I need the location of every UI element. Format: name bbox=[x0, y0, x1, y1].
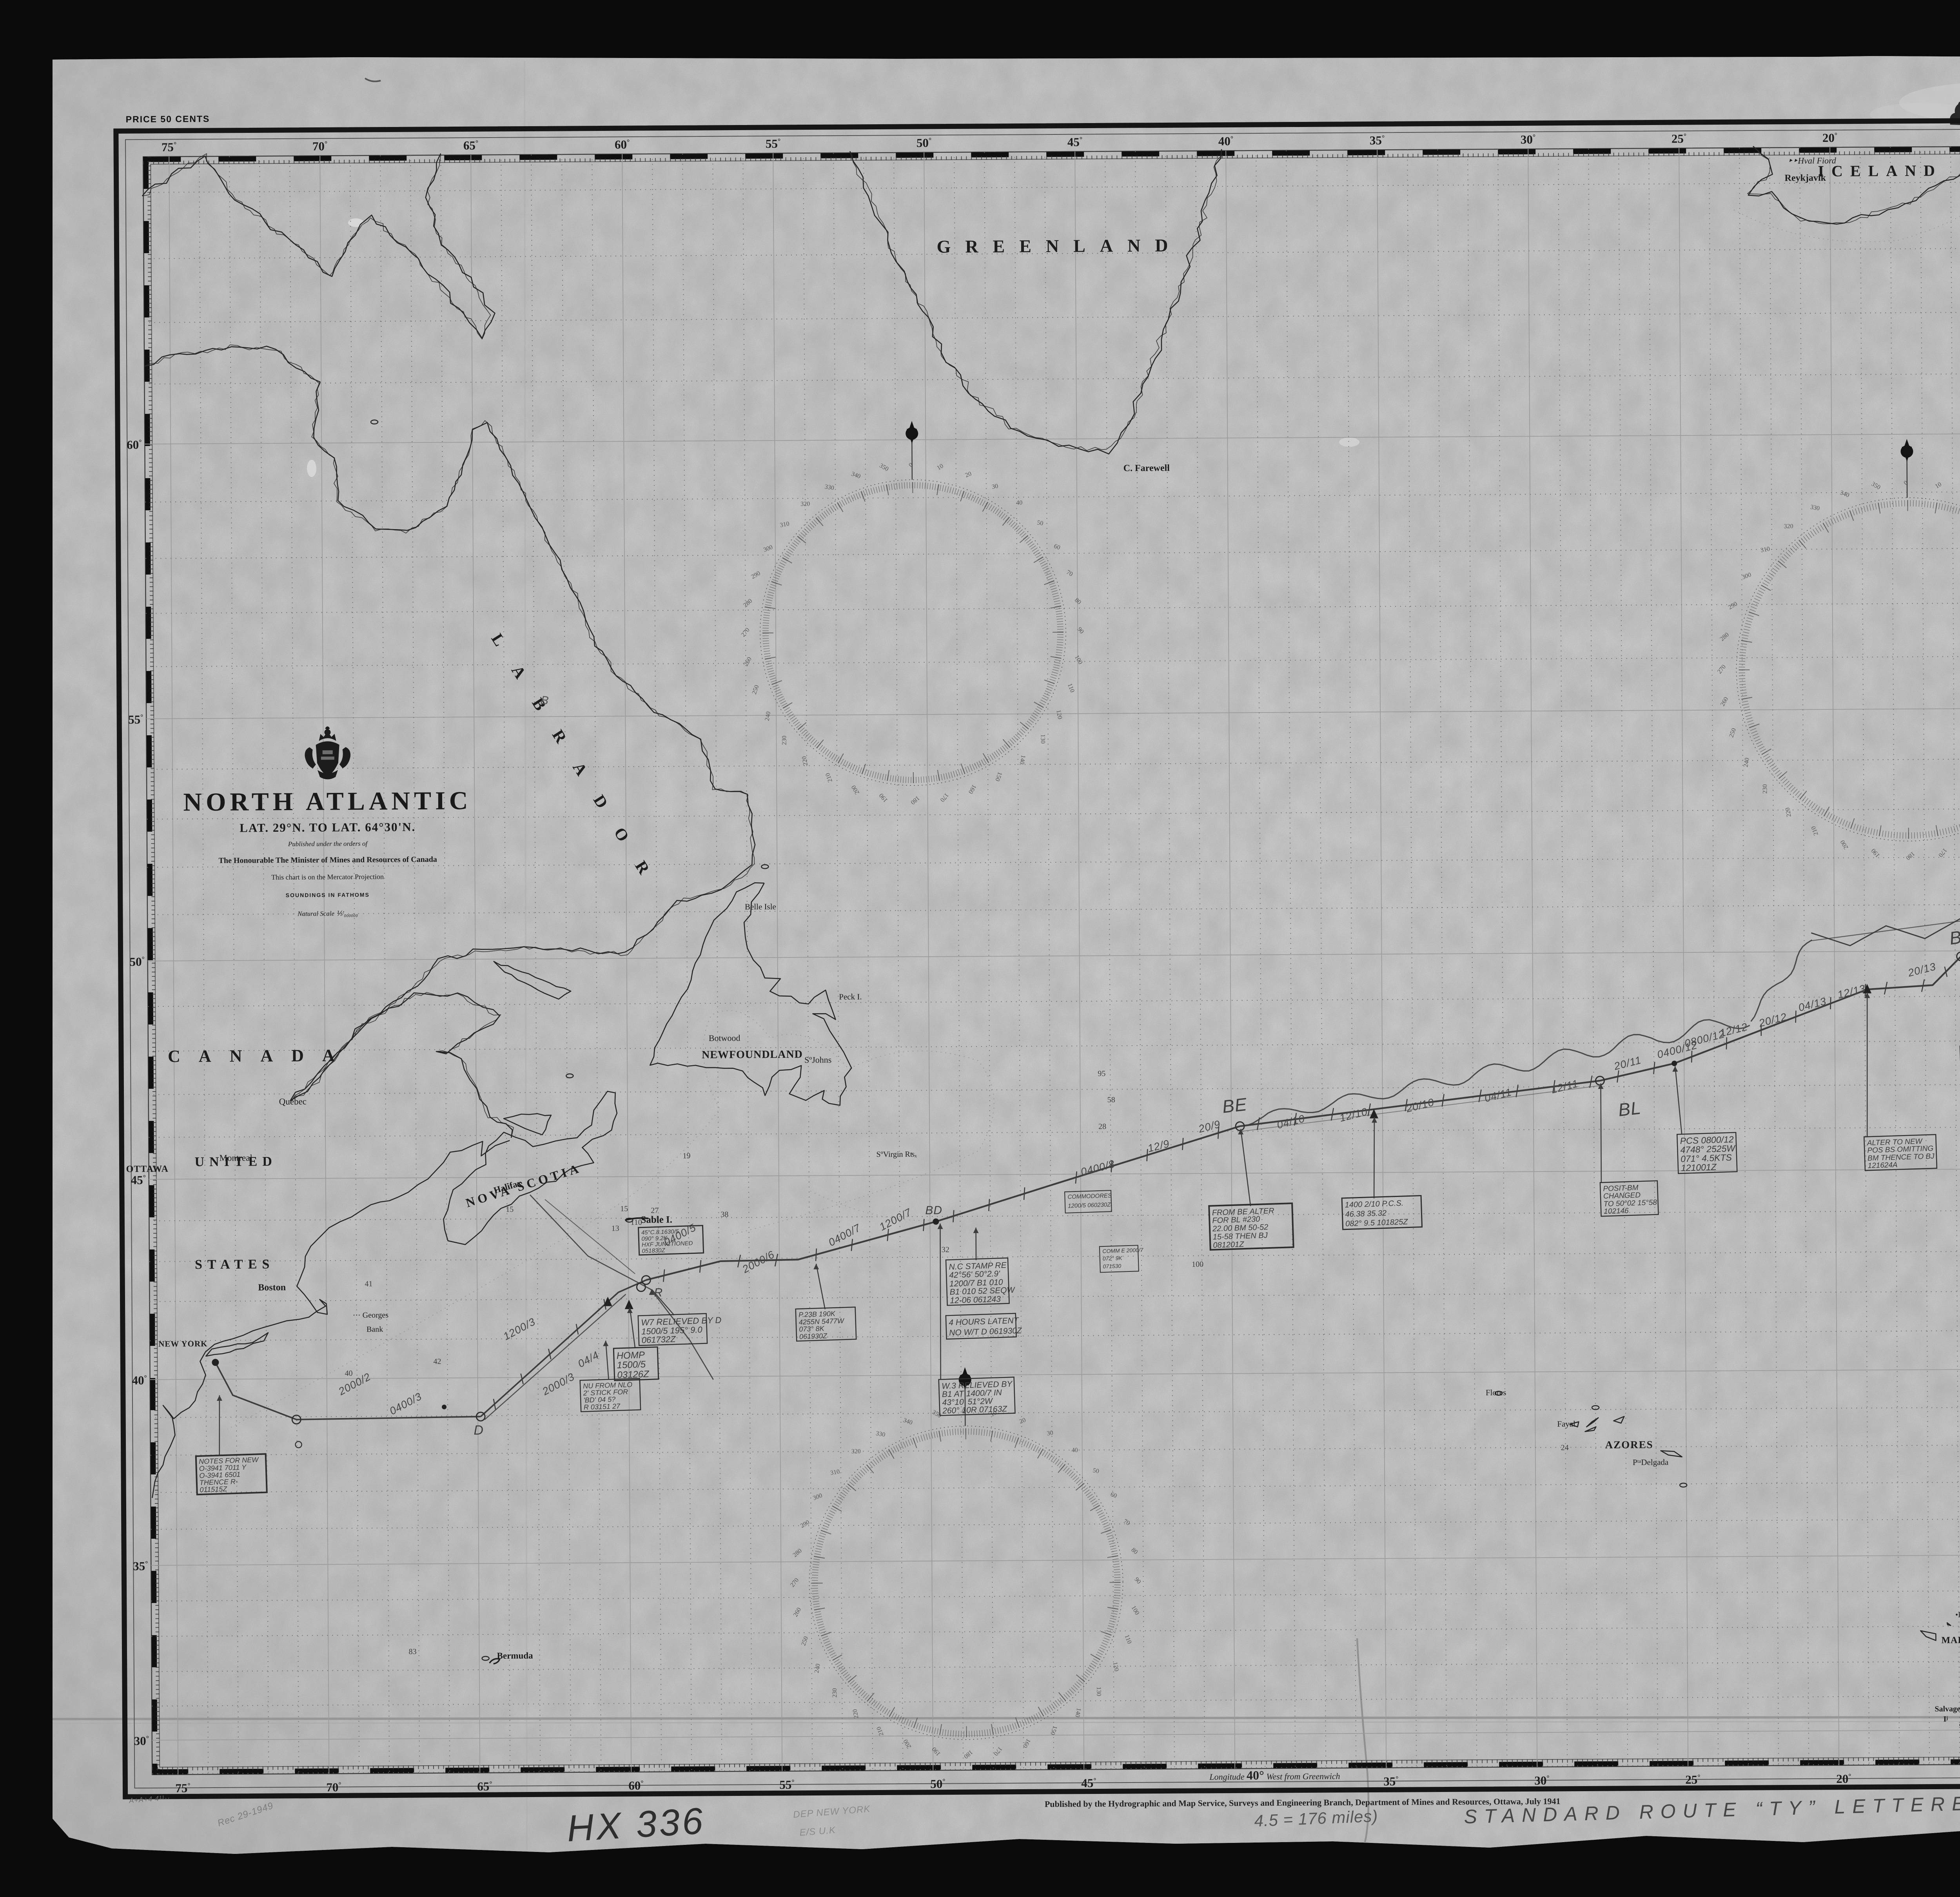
svg-text:061732Z: 061732Z bbox=[641, 1334, 676, 1345]
svg-text:GREENLAND: GREENLAND bbox=[936, 235, 1182, 257]
svg-text:Sable I.: Sable I. bbox=[641, 1214, 672, 1225]
svg-text:Belle Isle: Belle Isle bbox=[745, 902, 776, 911]
svg-text:NORTH ATLANTIC: NORTH ATLANTIC bbox=[183, 786, 472, 816]
svg-text:R 03151 27: R 03151 27 bbox=[584, 1402, 621, 1411]
svg-text:30: 30 bbox=[1046, 1429, 1054, 1437]
svg-text:BD: BD bbox=[925, 1204, 942, 1217]
svg-text:50: 50 bbox=[1036, 519, 1044, 527]
svg-text:081201Z: 081201Z bbox=[1213, 1240, 1244, 1250]
svg-text:110: 110 bbox=[630, 1218, 642, 1227]
svg-text:41: 41 bbox=[365, 1280, 372, 1288]
svg-text:Montreal: Montreal bbox=[219, 1153, 252, 1163]
svg-text:58: 58 bbox=[1107, 1095, 1115, 1104]
svg-text:12-06 061243: 12-06 061243 bbox=[950, 1295, 1001, 1305]
svg-text:This chart is on the Mercator: This chart is on the Mercator Projection bbox=[271, 873, 384, 881]
svg-text:Boston: Boston bbox=[258, 1282, 286, 1293]
svg-text:1200/5 060230Z: 1200/5 060230Z bbox=[1068, 1201, 1111, 1209]
svg-text:D: D bbox=[474, 1423, 484, 1438]
svg-text:PRICE 50 CENTS: PRICE 50 CENTS bbox=[126, 114, 210, 124]
svg-text:Reykjavik: Reykjavik bbox=[1785, 173, 1826, 183]
svg-text:Natural Scale ⅕′₀₀₀₀₀₀: Natural Scale ⅕′₀₀₀₀₀₀ bbox=[297, 910, 358, 918]
svg-text:061930Z: 061930Z bbox=[799, 1332, 828, 1340]
svg-text:230: 230 bbox=[781, 736, 788, 745]
svg-text:SºVirgin Rʦₓ: SºVirgin Rʦₓ bbox=[876, 1150, 917, 1159]
svg-text:STATES: STATES bbox=[195, 1257, 275, 1272]
svg-text:320: 320 bbox=[851, 1448, 861, 1455]
svg-text:28: 28 bbox=[1098, 1122, 1106, 1131]
svg-text:121001Z: 121001Z bbox=[1681, 1162, 1717, 1173]
svg-text:BE: BE bbox=[1221, 1094, 1248, 1117]
svg-text:•PᵗºSanto: •PᵗºSanto bbox=[1955, 1610, 1960, 1619]
svg-text:130: 130 bbox=[1040, 734, 1046, 744]
svg-text:40: 40 bbox=[1016, 499, 1022, 506]
svg-text:Flores: Flores bbox=[1486, 1388, 1506, 1397]
svg-text:100: 100 bbox=[1192, 1260, 1203, 1269]
svg-text:071530: 071530 bbox=[1103, 1263, 1121, 1270]
svg-text:LAT. 29°N. TO LAT. 64°30'N.: LAT. 29°N. TO LAT. 64°30'N. bbox=[240, 820, 416, 835]
svg-text:230: 230 bbox=[1762, 784, 1768, 794]
svg-text:15: 15 bbox=[620, 1204, 628, 1213]
svg-text:CANADA: CANADA bbox=[168, 1046, 353, 1066]
svg-text:COMM E 2000/7: COMM E 2000/7 bbox=[1102, 1247, 1144, 1254]
svg-text:24: 24 bbox=[1561, 1444, 1569, 1452]
svg-text:OTTAWA: OTTAWA bbox=[126, 1164, 169, 1175]
svg-text:Botwood: Botwood bbox=[709, 1033, 740, 1043]
svg-text:Fayal: Fayal bbox=[1557, 1419, 1575, 1429]
svg-text:B: B bbox=[540, 694, 550, 708]
svg-text:011515Z: 011515Z bbox=[200, 1485, 227, 1494]
svg-text:TO 50°02 15°58: TO 50°02 15°58 bbox=[1603, 1199, 1657, 1208]
svg-text:The Honourable The Minister of: The Honourable The Minister of Mines and… bbox=[219, 855, 437, 865]
svg-text:‣‣Hval Fiord: ‣‣Hval Fiord bbox=[1788, 156, 1837, 166]
svg-text:13: 13 bbox=[611, 1224, 619, 1233]
svg-text:MADEIRA: MADEIRA bbox=[1941, 1635, 1960, 1646]
svg-text:38: 38 bbox=[720, 1210, 728, 1219]
svg-text:46.38 35.32: 46.38 35.32 bbox=[1345, 1209, 1387, 1219]
svg-text:NEWFOUNDLAND: NEWFOUNDLAND bbox=[702, 1048, 803, 1061]
svg-text:130: 130 bbox=[1095, 1687, 1102, 1696]
svg-text:40: 40 bbox=[1072, 1447, 1078, 1454]
svg-text:NEW YORK: NEW YORK bbox=[158, 1339, 207, 1349]
svg-text:32: 32 bbox=[942, 1246, 949, 1254]
svg-text:15: 15 bbox=[506, 1205, 514, 1214]
svg-text:230: 230 bbox=[831, 1688, 838, 1698]
svg-text:HX 336: HX 336 bbox=[566, 1800, 706, 1850]
svg-text:30: 30 bbox=[991, 483, 999, 491]
svg-text:Salvage: Salvage bbox=[1935, 1705, 1960, 1713]
svg-text:AZORES: AZORES bbox=[1605, 1439, 1653, 1451]
svg-text:COMMODORES: COMMODORES bbox=[1067, 1192, 1112, 1201]
svg-text:Published under the orders of: Published under the orders of bbox=[288, 840, 368, 848]
svg-text:320: 320 bbox=[800, 501, 810, 507]
svg-text:R: R bbox=[654, 1286, 663, 1299]
svg-text:102146: 102146 bbox=[1604, 1207, 1629, 1216]
svg-text:ICELAND: ICELAND bbox=[1818, 161, 1942, 180]
svg-text:··· Georges: ··· Georges bbox=[353, 1311, 389, 1320]
svg-text:Iʲ: Iʲ bbox=[1944, 1715, 1948, 1723]
svg-text:40: 40 bbox=[345, 1369, 353, 1378]
svg-text:Bermuda: Bermuda bbox=[497, 1650, 534, 1661]
svg-text:PᵗᵃDelgada: PᵗᵃDelgada bbox=[1633, 1457, 1669, 1467]
svg-text:83: 83 bbox=[408, 1647, 416, 1656]
svg-text:BL: BL bbox=[1617, 1097, 1642, 1120]
svg-text:SOUNDINGS IN FATHOMS: SOUNDINGS IN FATHOMS bbox=[286, 892, 370, 898]
svg-text:121624A: 121624A bbox=[1867, 1161, 1898, 1170]
svg-text:072° 9K: 072° 9K bbox=[1103, 1255, 1123, 1262]
svg-text:50: 50 bbox=[1092, 1467, 1100, 1474]
svg-text:Peck I.: Peck I. bbox=[839, 992, 862, 1001]
svg-text:Bank: Bank bbox=[367, 1325, 383, 1334]
svg-text:051830Z: 051830Z bbox=[642, 1247, 666, 1255]
svg-text:SºJohns: SºJohns bbox=[804, 1055, 831, 1065]
svg-text:95: 95 bbox=[1098, 1069, 1105, 1078]
svg-text:19: 19 bbox=[682, 1152, 690, 1160]
svg-text:C. Farewell: C. Farewell bbox=[1123, 463, 1170, 473]
svg-text:27: 27 bbox=[651, 1206, 659, 1215]
svg-text:Quebec: Quebec bbox=[279, 1097, 307, 1106]
svg-text:320: 320 bbox=[1784, 523, 1793, 530]
svg-text:42: 42 bbox=[433, 1357, 441, 1366]
